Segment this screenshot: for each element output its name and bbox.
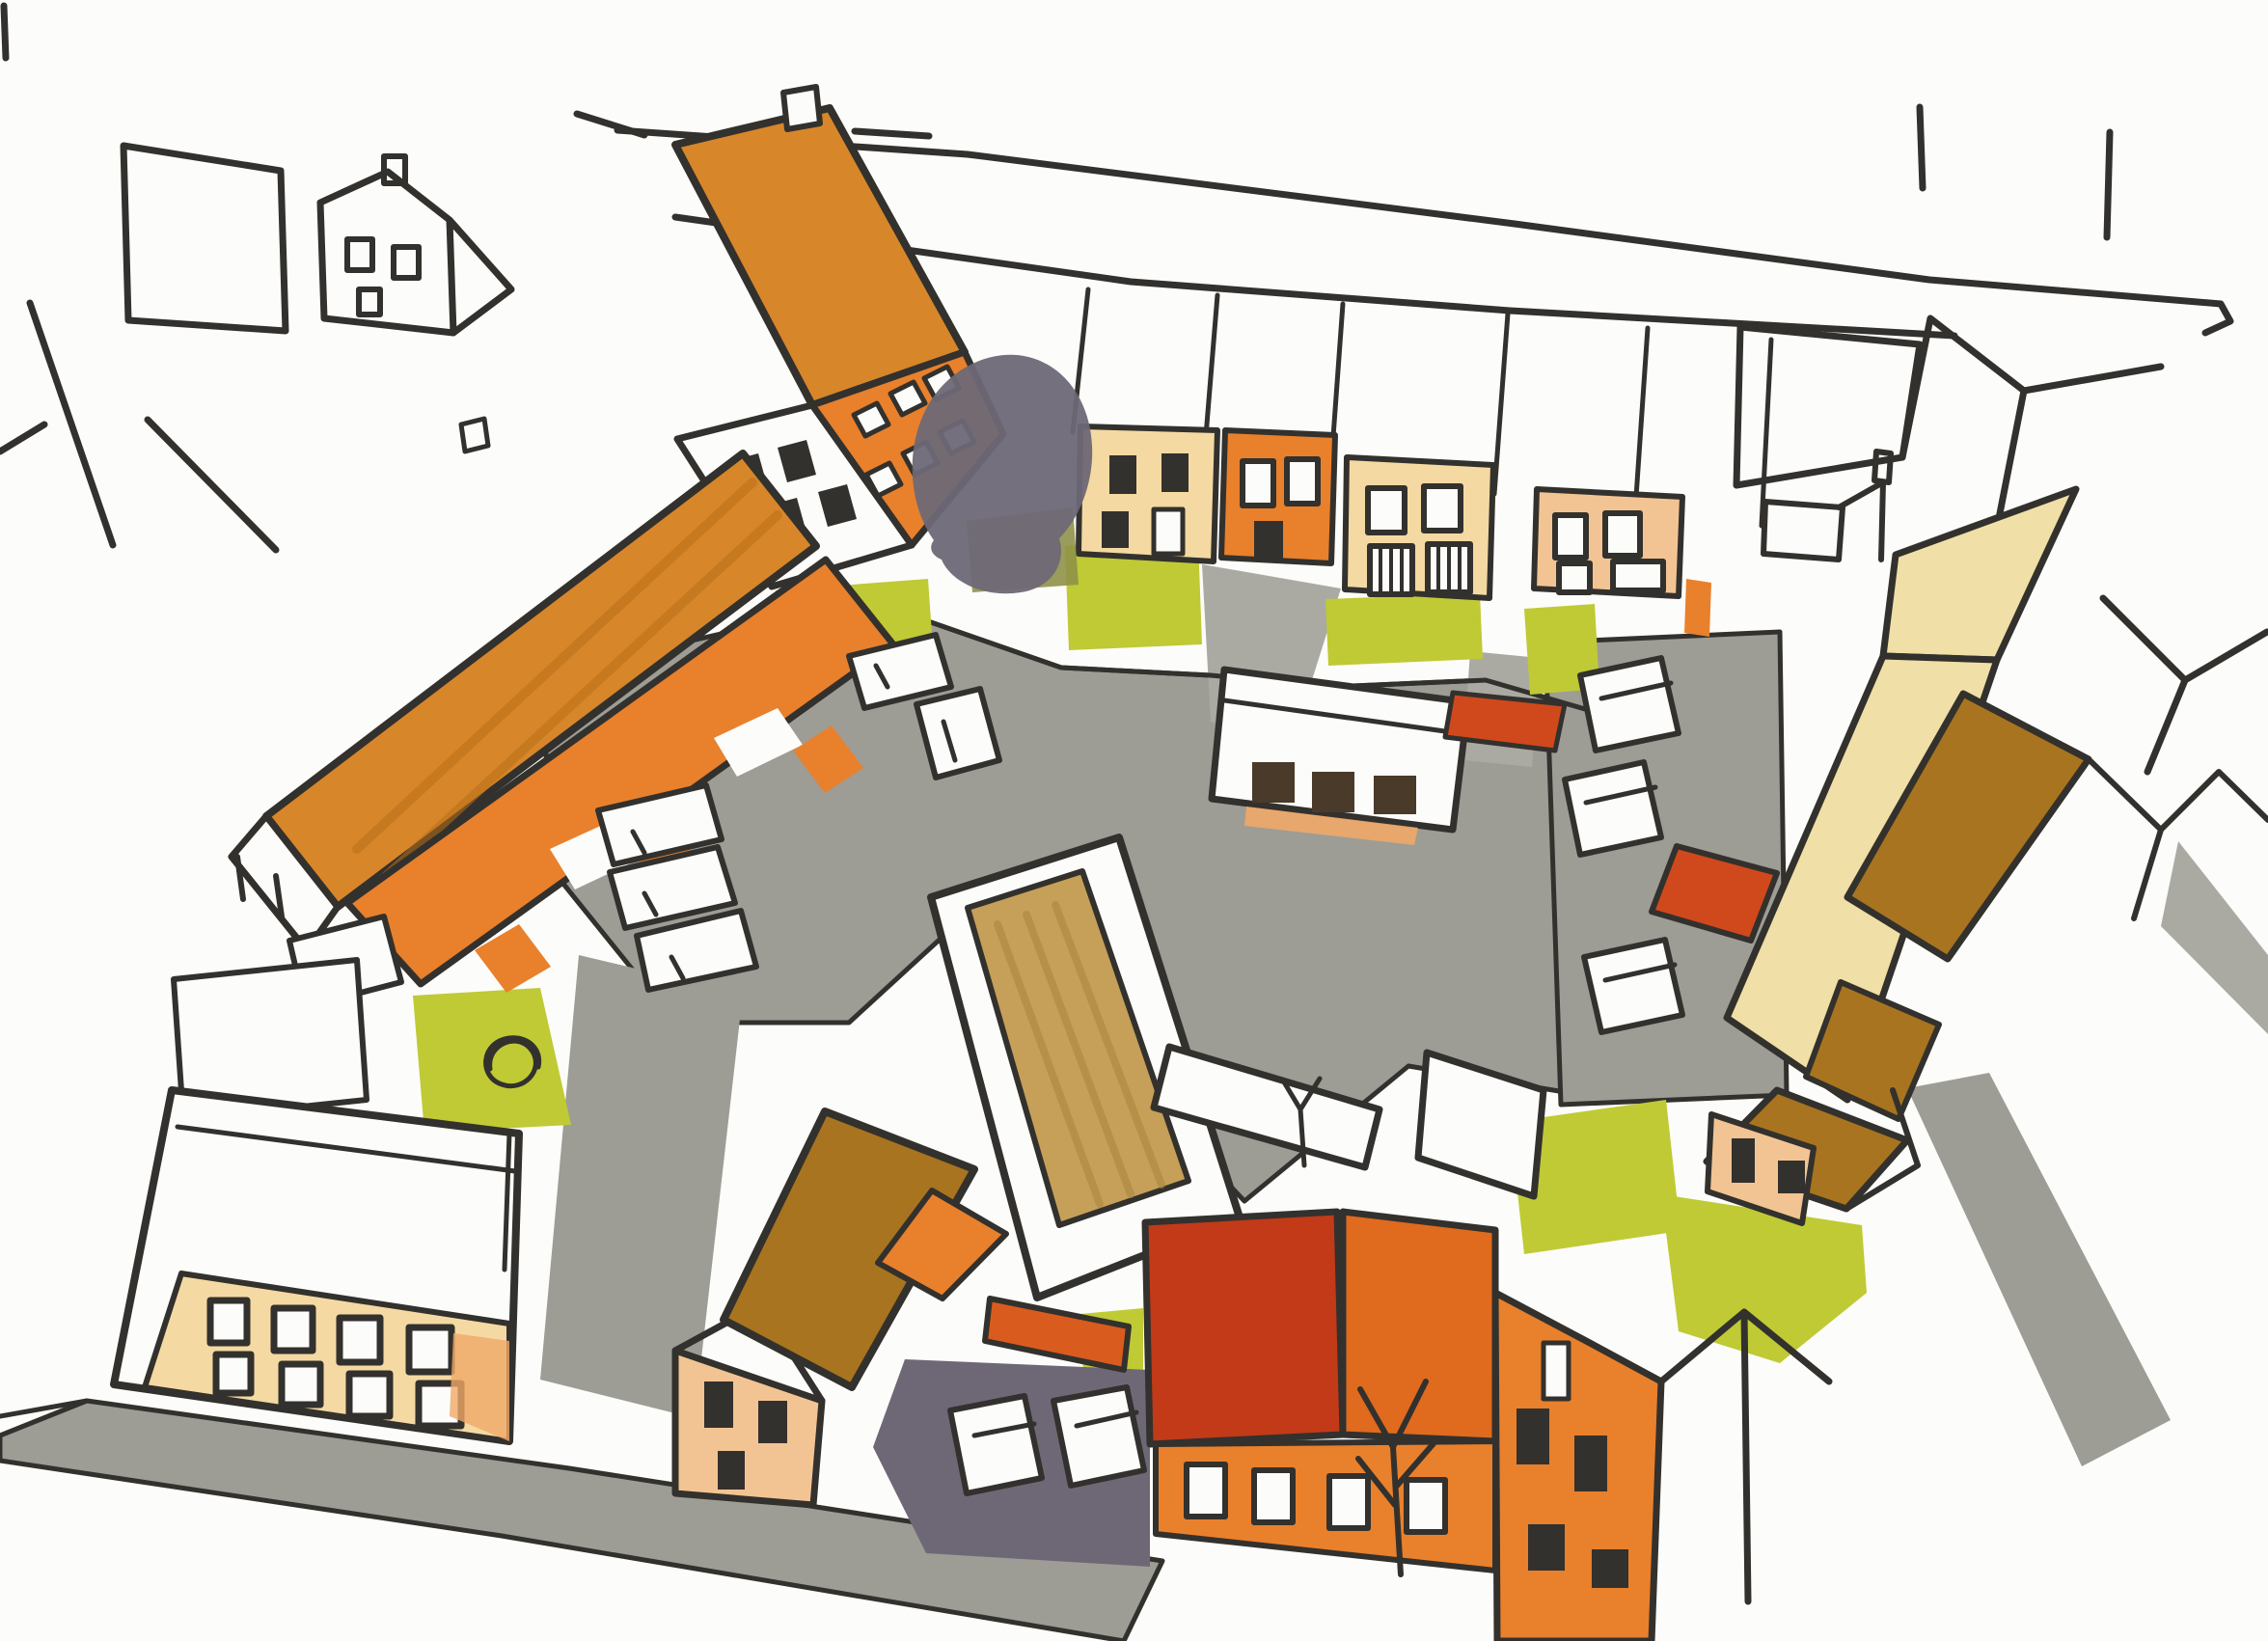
car-east-court-1 — [1580, 658, 1679, 751]
terrace-house-1-facade — [1079, 426, 1217, 561]
terrace-house-5-sliver — [1684, 579, 1711, 637]
front-garden-terrace2 — [1325, 593, 1483, 666]
car-south-lot-1 — [950, 1396, 1042, 1493]
terrace-house-1-door — [1154, 509, 1183, 554]
south-house-red-roof — [1145, 1212, 1343, 1444]
terrace-house-2-door — [1254, 521, 1283, 560]
sketch-canvas — [0, 0, 2268, 1641]
gable-house-chimney — [783, 87, 820, 129]
car-south-lot-2 — [1053, 1387, 1144, 1486]
terrace-roof-chimney — [461, 419, 488, 451]
car-east-court-2 — [1565, 762, 1661, 855]
south-gable-end-window-slit — [1544, 1343, 1569, 1399]
sketch-figure — [0, 0, 2268, 1641]
car-east-court-3 — [1584, 940, 1682, 1032]
south-house-orange-roof — [1343, 1212, 1495, 1441]
